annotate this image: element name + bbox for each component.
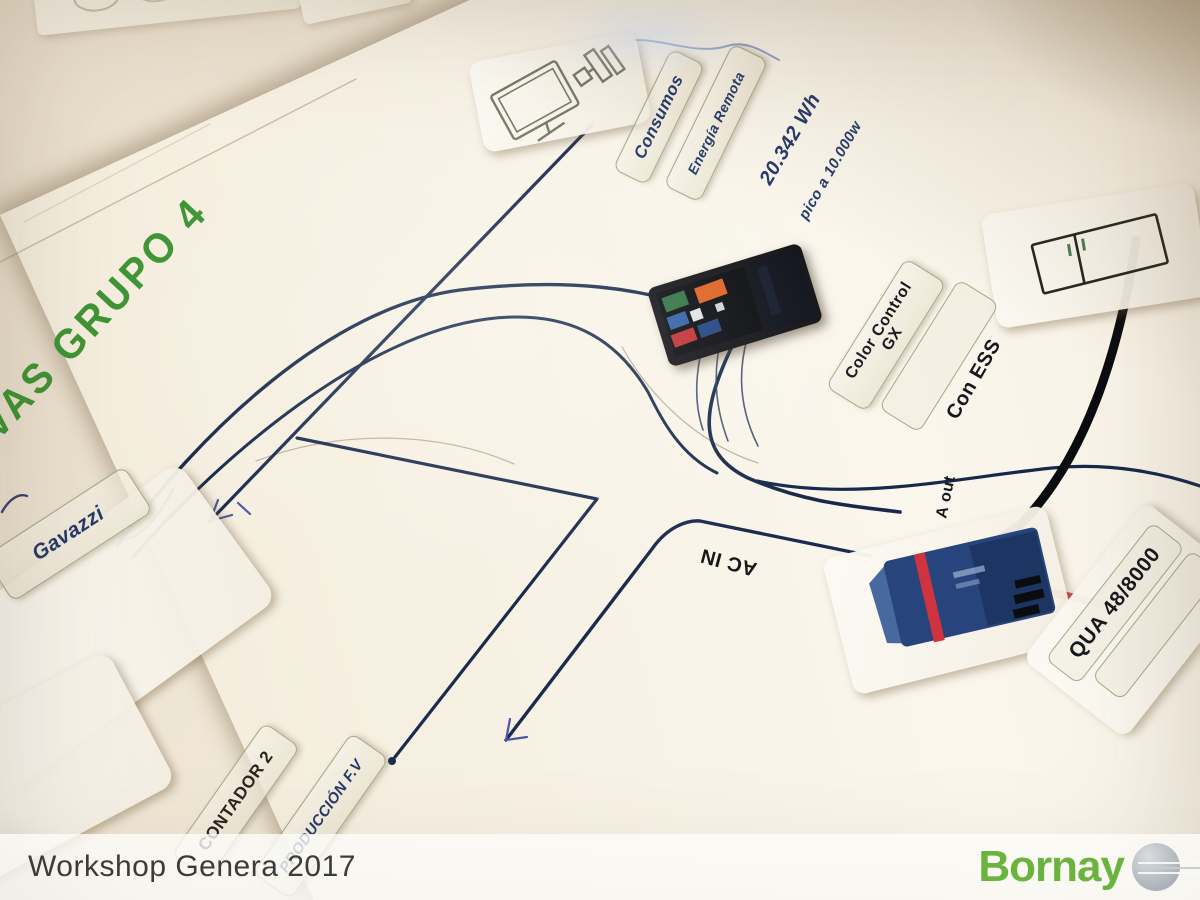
- hand-drawn-wiring-svg: [0, 0, 1200, 900]
- plug-icon: [568, 41, 624, 95]
- curve-ac-out-right: [757, 466, 1200, 489]
- partial-handwriting-stroke: [2, 495, 27, 512]
- line-consumption-to-meter: [210, 125, 592, 521]
- slide-footer-bar: Workshop Genera 2017 Bornay: [0, 834, 1200, 900]
- line-end-dot: [388, 757, 396, 765]
- footer-caption: Workshop Genera 2017: [28, 834, 356, 900]
- bornay-logo-text: Bornay: [978, 842, 1124, 892]
- workshop-photo-scene: NVAS GRUPO 4: [0, 0, 1200, 900]
- bornay-logo: Bornay: [978, 834, 1180, 900]
- line-ac-in: [506, 521, 871, 740]
- globe-sphere-icon: [1132, 843, 1180, 891]
- pencil-scratch: [622, 347, 758, 463]
- pencil-scratch: [256, 438, 514, 464]
- line-branch-to-production: [297, 438, 597, 757]
